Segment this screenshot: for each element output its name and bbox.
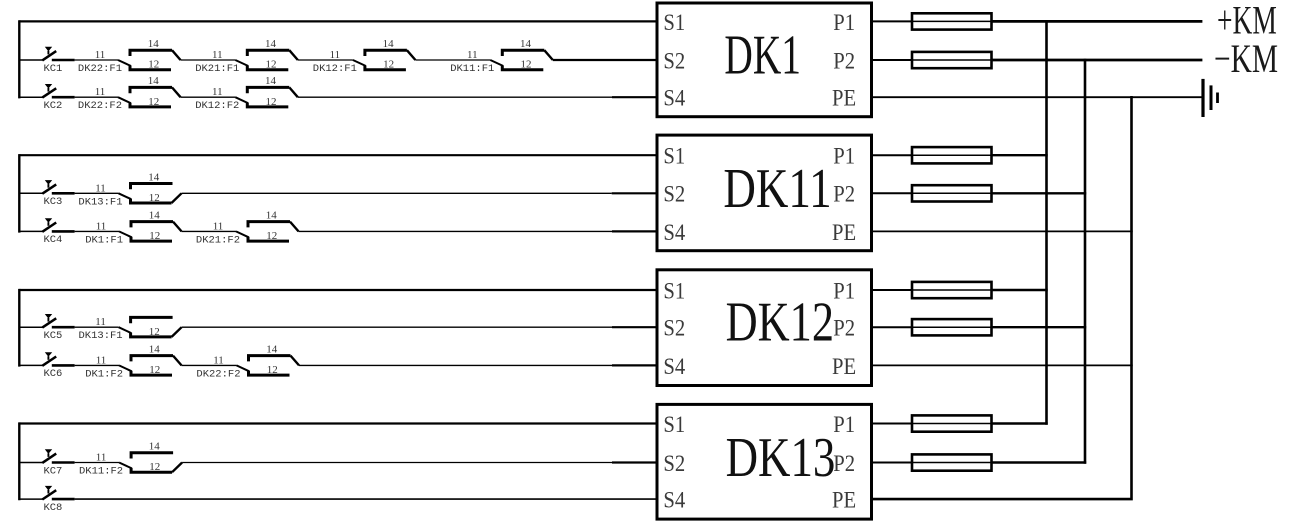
svg-text:PE: PE xyxy=(832,84,856,111)
svg-text:KC4: KC4 xyxy=(43,234,62,246)
svg-text:KC3: KC3 xyxy=(43,196,62,208)
svg-text:DK11:F1: DK11:F1 xyxy=(450,63,494,75)
svg-text:−KM: −KM xyxy=(1214,37,1278,81)
svg-text:S2: S2 xyxy=(663,450,685,477)
svg-text:S2: S2 xyxy=(663,180,685,207)
svg-text:DK1:F2: DK1:F2 xyxy=(85,368,123,380)
svg-text:11: 11 xyxy=(96,452,107,464)
svg-text:S1: S1 xyxy=(663,9,685,36)
svg-text:14: 14 xyxy=(266,209,278,221)
svg-text:12: 12 xyxy=(149,230,160,242)
svg-text:12: 12 xyxy=(149,326,160,338)
svg-text:14: 14 xyxy=(265,38,277,50)
svg-text:11: 11 xyxy=(330,49,341,61)
svg-text:DK13:F1: DK13:F1 xyxy=(78,330,122,342)
svg-text:DK12: DK12 xyxy=(726,291,834,353)
svg-text:PE: PE xyxy=(832,219,856,246)
svg-text:12: 12 xyxy=(267,364,278,376)
svg-text:14: 14 xyxy=(266,343,278,355)
svg-text:KC5: KC5 xyxy=(43,330,62,342)
svg-text:S4: S4 xyxy=(663,84,685,111)
svg-text:PE: PE xyxy=(832,353,856,380)
svg-text:11: 11 xyxy=(96,220,107,232)
svg-text:DK1: DK1 xyxy=(724,25,801,86)
svg-text:P2: P2 xyxy=(833,180,855,207)
svg-text:DK11:F2: DK11:F2 xyxy=(79,466,123,478)
svg-text:14: 14 xyxy=(149,441,161,453)
svg-text:KC1: KC1 xyxy=(43,63,62,75)
svg-text:14: 14 xyxy=(148,75,160,87)
svg-text:12: 12 xyxy=(266,59,277,71)
svg-text:DK13: DK13 xyxy=(726,426,836,488)
svg-text:12: 12 xyxy=(149,192,160,204)
svg-text:14: 14 xyxy=(148,38,160,50)
svg-text:14: 14 xyxy=(149,343,161,355)
svg-text:P2: P2 xyxy=(833,450,855,477)
svg-text:S4: S4 xyxy=(663,486,685,513)
svg-text:S2: S2 xyxy=(663,314,685,341)
svg-text:14: 14 xyxy=(520,38,532,50)
svg-text:14: 14 xyxy=(265,75,277,87)
svg-text:11: 11 xyxy=(95,86,106,98)
svg-text:12: 12 xyxy=(266,230,277,242)
svg-text:DK21:F2: DK21:F2 xyxy=(196,234,240,246)
svg-text:12: 12 xyxy=(149,364,160,376)
svg-text:DK12:F2: DK12:F2 xyxy=(195,100,239,112)
svg-text:DK22:F2: DK22:F2 xyxy=(196,368,240,380)
svg-text:11: 11 xyxy=(96,354,107,366)
svg-text:11: 11 xyxy=(213,354,224,366)
svg-text:S4: S4 xyxy=(663,353,685,380)
svg-text:DK12:F1: DK12:F1 xyxy=(313,63,357,75)
svg-text:P2: P2 xyxy=(833,314,855,341)
svg-text:11: 11 xyxy=(95,49,106,61)
svg-text:KC8: KC8 xyxy=(43,502,62,514)
svg-text:11: 11 xyxy=(95,316,106,328)
svg-text:12: 12 xyxy=(148,96,159,108)
svg-text:KC2: KC2 xyxy=(43,100,62,112)
svg-text:12: 12 xyxy=(148,59,159,71)
svg-text:S4: S4 xyxy=(663,219,685,246)
svg-text:11: 11 xyxy=(467,49,478,61)
svg-text:P1: P1 xyxy=(833,277,855,304)
svg-text:11: 11 xyxy=(212,86,223,98)
svg-text:12: 12 xyxy=(521,59,532,71)
svg-text:KC7: KC7 xyxy=(43,465,62,477)
svg-text:DK21:F1: DK21:F1 xyxy=(195,63,239,75)
svg-text:PE: PE xyxy=(832,486,856,513)
svg-text:S1: S1 xyxy=(663,411,685,438)
svg-text:P1: P1 xyxy=(833,9,855,36)
svg-text:P2: P2 xyxy=(833,47,855,74)
svg-text:DK22:F1: DK22:F1 xyxy=(78,63,122,75)
svg-text:14: 14 xyxy=(149,209,161,221)
svg-text:P1: P1 xyxy=(833,142,855,169)
svg-text:11: 11 xyxy=(213,220,224,232)
svg-text:DK1:F1: DK1:F1 xyxy=(85,234,123,246)
svg-text:12: 12 xyxy=(383,59,394,71)
svg-text:P1: P1 xyxy=(833,411,855,438)
svg-text:12: 12 xyxy=(149,461,160,473)
svg-text:11: 11 xyxy=(95,182,106,194)
svg-text:KC6: KC6 xyxy=(43,368,62,380)
svg-text:14: 14 xyxy=(148,171,160,183)
svg-text:12: 12 xyxy=(266,96,277,108)
svg-text:DK13:F1: DK13:F1 xyxy=(78,196,122,208)
svg-text:S1: S1 xyxy=(663,142,685,169)
svg-text:14: 14 xyxy=(383,38,395,50)
svg-text:S2: S2 xyxy=(663,47,685,74)
svg-text:DK22:F2: DK22:F2 xyxy=(78,100,122,112)
svg-text:11: 11 xyxy=(212,49,223,61)
svg-text:S1: S1 xyxy=(663,277,685,304)
svg-text:DK11: DK11 xyxy=(723,157,831,219)
